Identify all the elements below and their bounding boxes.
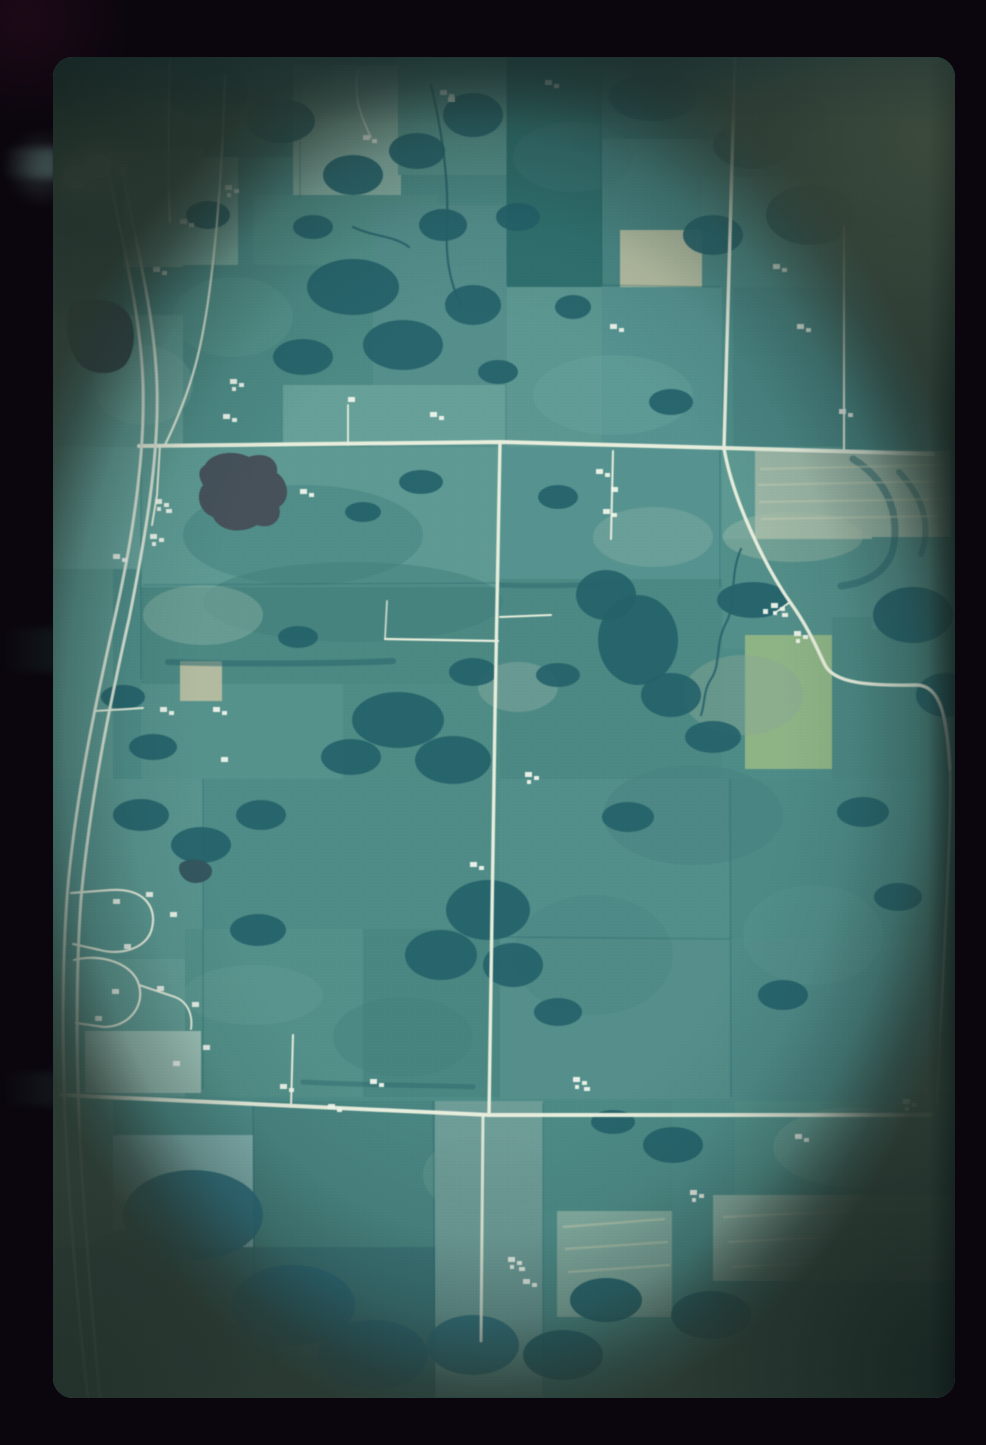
film-slide [0,0,986,1445]
woods-patch [446,880,530,940]
farmstead-building [113,554,120,559]
farmstead-building [379,1083,384,1087]
woods-patch [643,1127,703,1163]
farmstead-building [225,185,232,190]
farmstead-building [157,986,164,991]
farmstead-building [155,499,162,504]
woods-patch [649,389,693,415]
farmstead-building [227,193,231,197]
farmstead-building [692,1198,696,1202]
woods-patch [307,259,399,315]
woods-patch [113,799,169,831]
parcel-boundary [730,779,731,1097]
farmstead-building [239,383,244,387]
woods-patch [389,133,445,169]
terrain-tone [743,885,883,985]
woods-patch [321,739,381,775]
farmstead-building [222,711,227,715]
terrain-tone [173,277,293,357]
farmstead-building [440,90,447,95]
farmstead-building [169,711,174,715]
farmstead-building [848,413,853,417]
farmstead-building [203,1045,210,1050]
woods-patch [496,203,540,231]
farmstead-building [300,489,307,494]
woods-patch [101,685,145,709]
woods-patch [278,626,318,648]
farmstead-building [796,639,800,643]
farmstead-building [771,603,778,608]
county-road-ns-center-lower [481,1115,483,1341]
farmstead-building [610,324,617,329]
field-parcel [180,661,222,701]
woods-patch [685,721,741,753]
farmstead-building [575,1085,579,1089]
farmstead-building [289,1088,294,1092]
woods-patch [415,736,491,784]
farmstead-building [280,1084,287,1089]
woods-patch [81,1230,181,1300]
woods-patch [419,209,467,241]
farmstead-building [806,328,811,332]
woods-patch [523,1330,603,1380]
farmstead-building [545,80,552,85]
farmstead-building [596,469,603,474]
farmstead-building [337,1108,342,1112]
woods-patch [538,485,578,509]
woods-patch [230,914,286,946]
aerial-photograph [53,57,955,1398]
farmstead-building [573,1077,580,1082]
farmstead-building [157,507,161,511]
farmstead-building [146,892,153,897]
farmstead-building [153,267,160,272]
farmstead-building [584,1087,590,1091]
farmstead-building [605,473,610,477]
farmstead-building [122,558,127,562]
farmstead-building [519,1267,525,1271]
farmstead-building [160,707,167,712]
woods-patch [534,998,582,1026]
woods-patch [555,295,591,319]
farmstead-building [159,538,164,542]
farmstead-building [124,944,131,949]
woods-patch [352,692,444,748]
woods-patch [874,883,922,911]
farmstead-building [170,912,177,917]
farmstead-building [603,509,610,514]
light-leak-streak [0,1072,56,1106]
woods-patch [758,95,828,135]
farmstead-building [370,1079,377,1084]
farmstead-building [223,414,230,419]
woods-patch [427,1315,519,1375]
farmstead-building [230,379,237,384]
woods-patch [363,320,443,370]
terrain-tone [773,1107,933,1187]
farmstead-building [523,1279,530,1284]
field-parcel [85,1031,201,1093]
farmstead-building [763,609,768,614]
woods-patch [449,658,497,686]
farmstead-building [348,397,355,402]
farmstead-building [839,409,846,414]
woods-patch [683,215,743,255]
farmstead-building [328,1104,335,1109]
farmstead-building [232,418,237,422]
farmstead-building [699,1194,704,1198]
farmstead-building [619,328,624,332]
farmstead-building [448,97,455,102]
farmstead-building [180,219,187,224]
woods-patch [766,185,856,245]
farmstead-building [363,135,370,140]
woods-patch [247,99,315,143]
farmstead-building [95,1016,102,1021]
farmstead-building [773,611,777,615]
farmstead-building [213,707,220,712]
farmstead-building [234,189,239,193]
farmstead-building [534,776,539,780]
farmstead-building [797,324,804,329]
farmstead-building [152,542,156,546]
woods-patch [293,215,333,239]
farmstead-building [780,607,785,611]
farmstead-building [166,509,172,513]
farmstead-building [554,84,559,88]
woods-patch [570,1278,642,1322]
field-parcel [283,385,505,445]
farmstead-building [430,412,437,417]
woods-patch [609,73,697,121]
farmstead-building [221,757,228,762]
farmstead-building [773,264,780,269]
farmstead-building [150,534,157,539]
woods-patch [873,587,953,643]
farmstead-building [517,1261,522,1265]
farmstead-building [525,772,532,777]
woods-patch [236,800,286,830]
farmstead-building [794,631,801,636]
farmstead-building [189,223,194,227]
tree-line [168,661,393,664]
woods-patch [405,930,477,980]
farmstead-building [782,613,788,617]
farmstead-building [164,503,169,507]
terrain-tone [333,997,473,1077]
woods-patch [536,663,580,687]
terrain-tone [513,122,633,192]
field-parcel [141,684,343,779]
woods-patch [323,155,383,195]
woods-patch [171,827,231,863]
terrain-tone [143,585,263,645]
woods-patch [478,360,518,384]
woods-patch [837,797,889,827]
farmstead-building [795,1134,802,1139]
woods-patch [181,1325,281,1385]
farmstead-building [173,1061,180,1066]
photo-svg [53,57,955,1398]
woods-patch [671,1291,751,1339]
woods-patch [576,570,636,620]
farmstead-building [479,866,484,870]
farmstead-building [192,1002,199,1007]
woods-patch [273,339,333,375]
farmstead-building [804,1138,809,1142]
woods-patch [345,502,381,522]
farmstead-building [309,493,314,497]
woods-patch [168,64,248,120]
farmstead-building [612,513,617,517]
woods-patch [641,673,701,717]
farmstead-building [582,1081,587,1085]
woods-patch [129,734,177,760]
farmstead-building [782,268,787,272]
farmstead-building [162,271,167,275]
farmstead-building [470,862,477,867]
farmstead-building [113,899,120,904]
woods-patch [717,582,789,618]
woods-patch [445,285,501,325]
farmstead-building [439,416,444,420]
farmstead-building [912,1103,917,1107]
farmstead-building [690,1190,697,1195]
farmstead-building [532,1283,537,1287]
field-parcel [53,569,113,779]
farmstead-building [803,635,808,639]
terrain-tone [183,965,323,1025]
light-leak-streak [0,628,56,672]
farmstead-building [611,487,618,492]
farmstead-building [112,989,119,994]
farmstead-building [508,1257,515,1262]
woods-patch [318,1320,428,1390]
woods-patch [758,980,808,1010]
farmstead-building [903,1099,910,1104]
woods-patch [602,802,654,832]
farmstead-building [232,387,236,391]
woods-patch [399,470,443,494]
farmstead-building [527,780,531,784]
farmstead-building [905,1107,909,1111]
farmstead-building [372,139,377,143]
farmstead-building [510,1265,514,1269]
